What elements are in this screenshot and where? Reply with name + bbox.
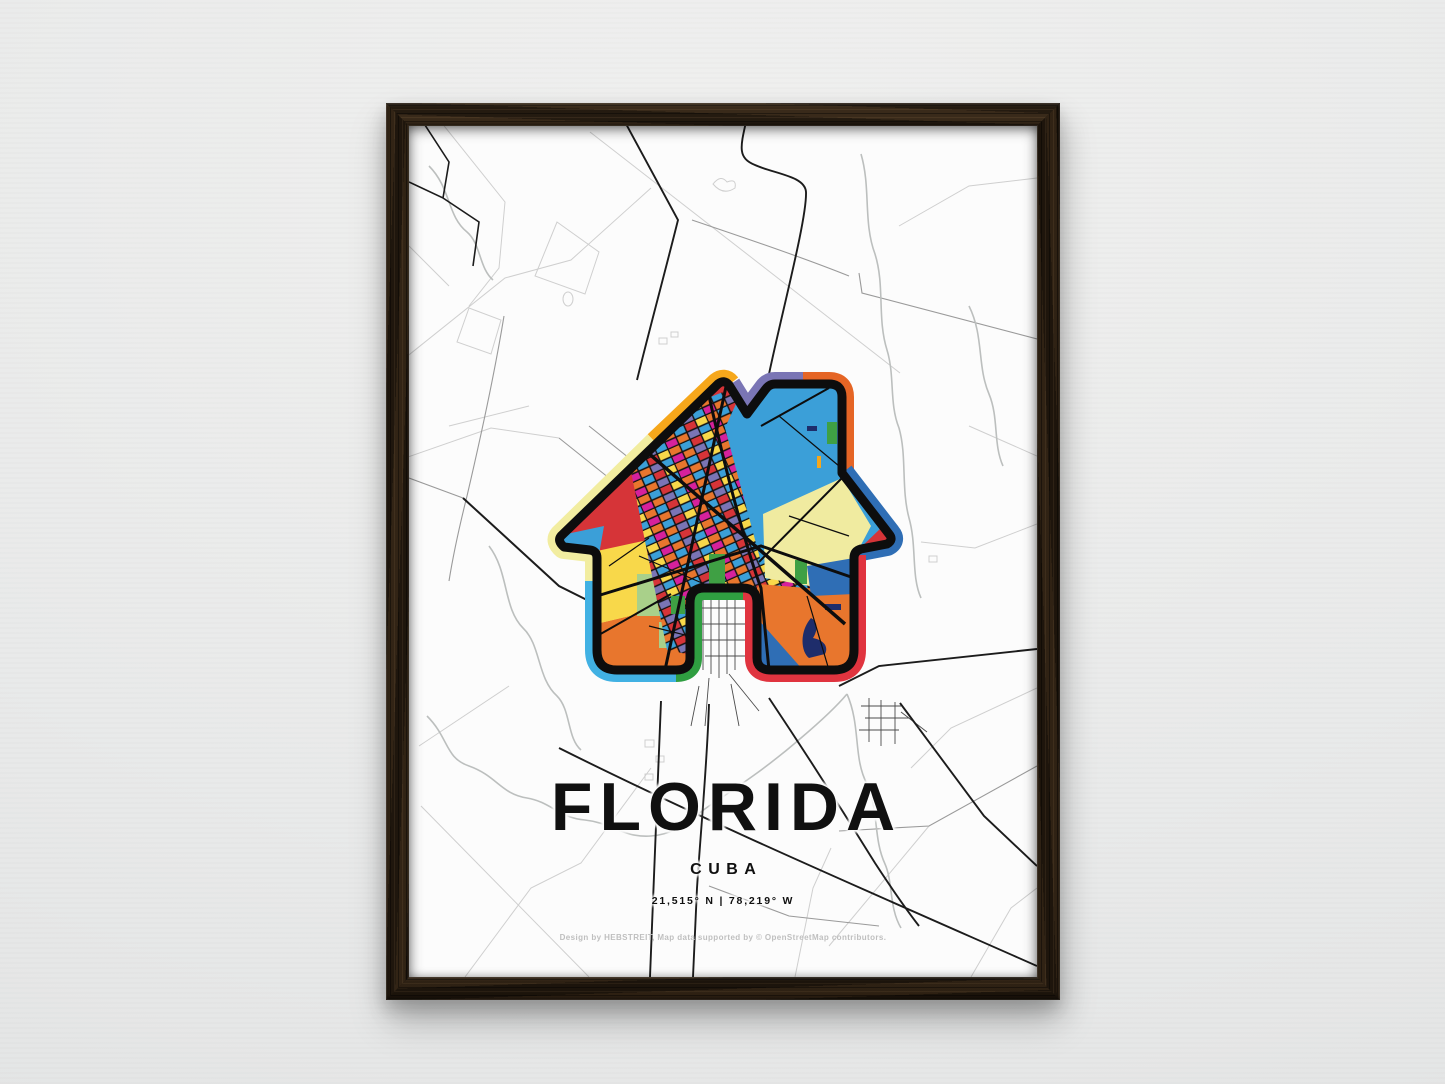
poster-coordinates: 21,515° N | 78,219° W	[409, 895, 1037, 907]
poster-credit: Design by HEBSTREIT, Map data supported …	[409, 933, 1037, 942]
picture-frame: FLORIDA CUBA 21,515° N | 78,219° W Desig…	[386, 103, 1060, 1000]
poster-text-block: FLORIDA CUBA 21,515° N | 78,219° W Desig…	[409, 774, 1037, 942]
yellow-tick	[817, 456, 821, 468]
frame-rail-bottom	[386, 977, 1060, 1000]
frame-rail-top	[386, 103, 1060, 126]
frame-rail-left	[386, 103, 409, 1000]
map-poster: FLORIDA CUBA 21,515° N | 78,219° W Desig…	[409, 126, 1037, 977]
page-title: FLORIDA	[409, 774, 1044, 840]
poster-subtitle: CUBA	[409, 861, 1044, 879]
